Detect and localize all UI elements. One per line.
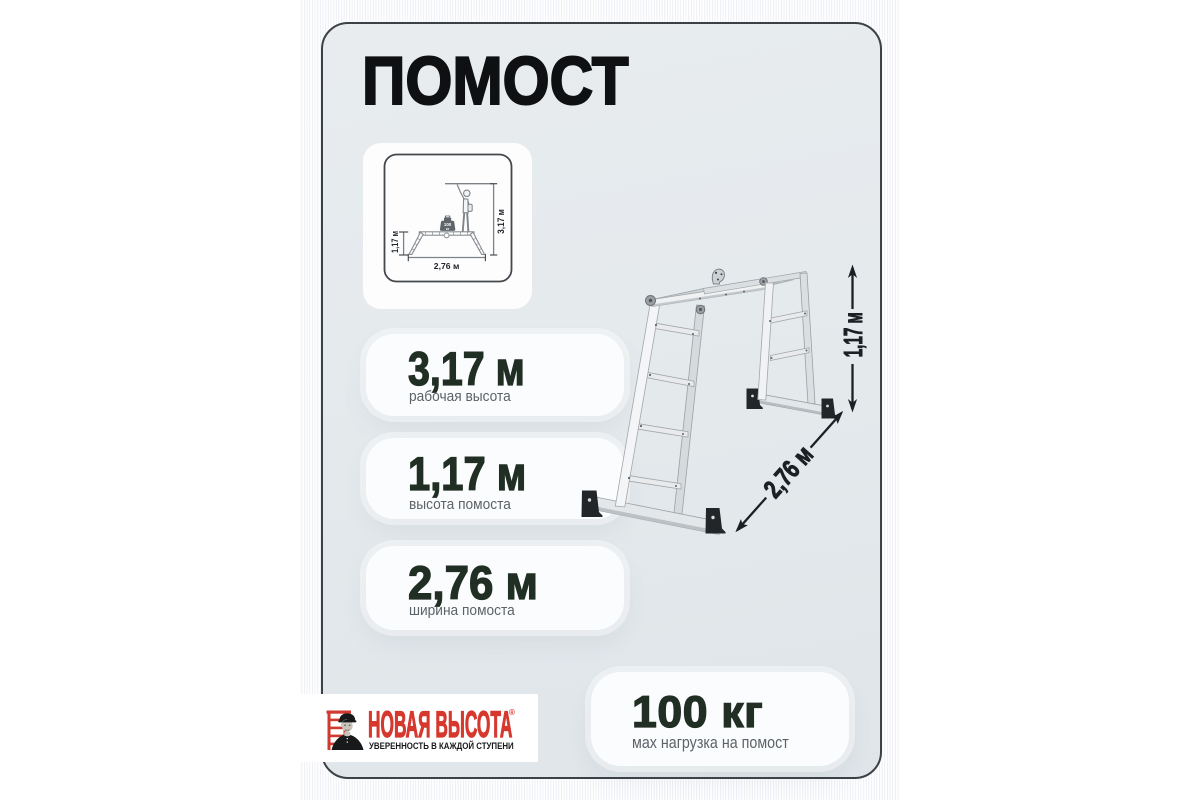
svg-text:1,17 м: 1,17 м bbox=[838, 312, 868, 357]
svg-text:2,76 м: 2,76 м bbox=[757, 440, 819, 504]
